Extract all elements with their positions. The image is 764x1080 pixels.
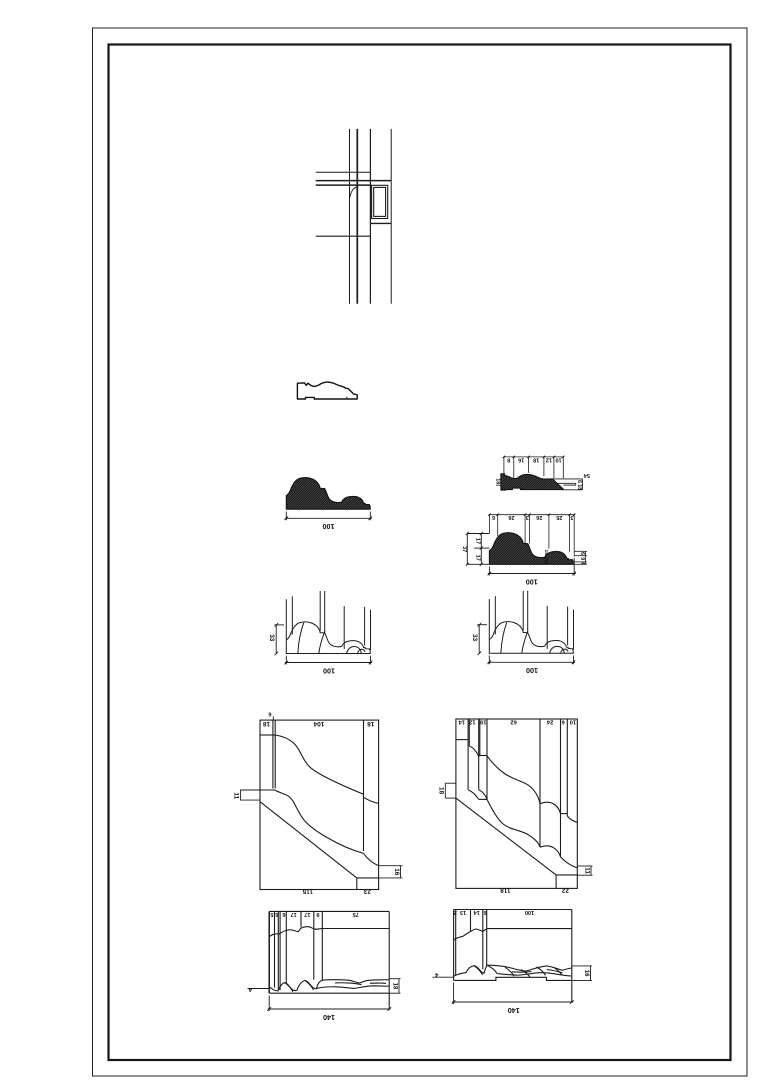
svg-text:100: 100 bbox=[323, 522, 335, 531]
svg-text:6: 6 bbox=[579, 552, 585, 555]
svg-text:16: 16 bbox=[518, 456, 524, 462]
svg-text:6: 6 bbox=[275, 911, 278, 917]
svg-text:6: 6 bbox=[483, 909, 486, 915]
svg-text:100: 100 bbox=[525, 909, 534, 915]
svg-text:100: 100 bbox=[323, 666, 335, 675]
svg-text:104: 104 bbox=[313, 720, 324, 727]
svg-text:2: 2 bbox=[454, 909, 457, 915]
svg-text:12: 12 bbox=[546, 456, 552, 462]
svg-text:23: 23 bbox=[363, 887, 371, 894]
svg-text:26: 26 bbox=[536, 514, 542, 520]
svg-text:6: 6 bbox=[576, 480, 582, 483]
svg-text:18: 18 bbox=[533, 456, 539, 462]
svg-text:24: 24 bbox=[546, 719, 553, 725]
svg-text:18: 18 bbox=[543, 550, 549, 556]
svg-text:3: 3 bbox=[526, 514, 529, 520]
svg-text:17: 17 bbox=[475, 555, 481, 561]
svg-text:10: 10 bbox=[555, 456, 561, 462]
svg-text:11: 11 bbox=[233, 792, 240, 799]
svg-text:5: 5 bbox=[270, 911, 273, 917]
svg-text:140: 140 bbox=[508, 1006, 520, 1015]
svg-text:11: 11 bbox=[584, 867, 591, 874]
svg-text:140: 140 bbox=[323, 1013, 335, 1022]
svg-text:13: 13 bbox=[460, 909, 466, 915]
svg-text:9: 9 bbox=[316, 911, 319, 917]
svg-text:54: 54 bbox=[584, 472, 590, 478]
svg-text:6: 6 bbox=[282, 911, 285, 917]
svg-text:18: 18 bbox=[263, 720, 271, 727]
svg-text:8: 8 bbox=[507, 456, 510, 462]
svg-text:75: 75 bbox=[353, 911, 359, 917]
svg-text:12: 12 bbox=[469, 719, 475, 725]
svg-text:17: 17 bbox=[304, 911, 310, 917]
svg-text:6: 6 bbox=[268, 711, 272, 717]
svg-text:16: 16 bbox=[583, 970, 589, 977]
svg-text:17: 17 bbox=[475, 538, 481, 544]
svg-text:33: 33 bbox=[268, 634, 275, 641]
svg-text:118: 118 bbox=[500, 886, 511, 893]
svg-text:26: 26 bbox=[508, 514, 514, 520]
svg-text:10: 10 bbox=[570, 719, 576, 725]
svg-text:115: 115 bbox=[302, 887, 313, 894]
svg-text:14: 14 bbox=[458, 719, 465, 725]
svg-text:100: 100 bbox=[526, 577, 538, 586]
svg-text:37: 37 bbox=[461, 546, 467, 552]
svg-text:10: 10 bbox=[480, 719, 486, 725]
svg-text:18: 18 bbox=[494, 478, 500, 484]
svg-text:22: 22 bbox=[561, 886, 569, 893]
svg-text:16: 16 bbox=[393, 868, 400, 876]
svg-text:18: 18 bbox=[576, 484, 582, 490]
svg-text:25: 25 bbox=[556, 514, 562, 520]
svg-text:6: 6 bbox=[492, 514, 495, 520]
svg-text:4: 4 bbox=[579, 562, 585, 565]
svg-text:18: 18 bbox=[438, 787, 445, 795]
svg-text:R6: R6 bbox=[543, 558, 549, 564]
svg-text:4: 4 bbox=[434, 971, 438, 977]
svg-text:9: 9 bbox=[579, 557, 585, 560]
svg-text:18: 18 bbox=[367, 720, 375, 727]
svg-text:17: 17 bbox=[290, 911, 296, 917]
svg-text:3: 3 bbox=[570, 514, 573, 520]
svg-text:62: 62 bbox=[510, 719, 516, 725]
svg-text:14: 14 bbox=[473, 909, 480, 915]
svg-text:4: 4 bbox=[248, 986, 252, 992]
svg-text:18: 18 bbox=[392, 983, 398, 990]
